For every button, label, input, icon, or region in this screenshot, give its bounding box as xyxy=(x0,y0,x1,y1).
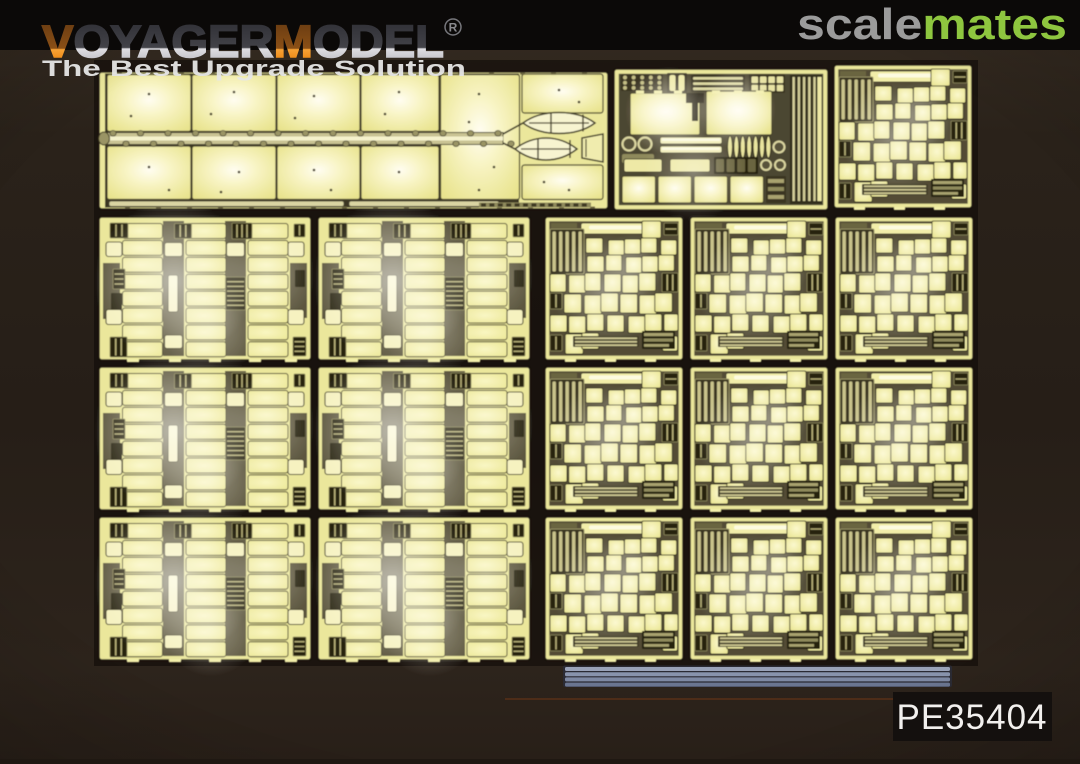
svg-text:The Best Upgrade Solution: The Best Upgrade Solution xyxy=(42,56,466,81)
svg-text:scalemates: scalemates xyxy=(797,0,1067,49)
svg-text:PE35404: PE35404 xyxy=(896,698,1047,737)
svg-text:R: R xyxy=(449,21,458,35)
